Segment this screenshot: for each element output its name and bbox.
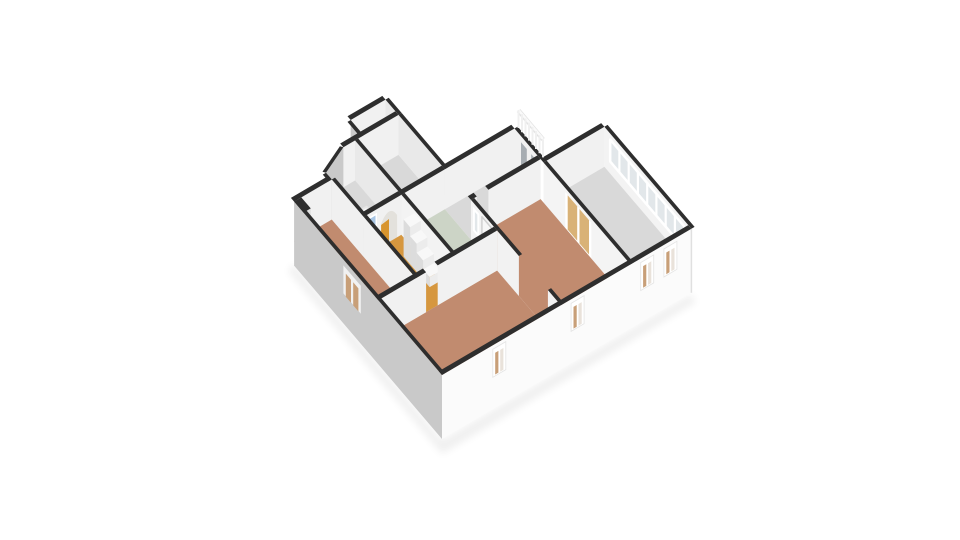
floorplan-3d-render xyxy=(0,0,960,540)
stair-step-side xyxy=(404,220,411,265)
floorplan-3d-viewport xyxy=(0,0,960,540)
bathroom-window xyxy=(474,209,478,235)
